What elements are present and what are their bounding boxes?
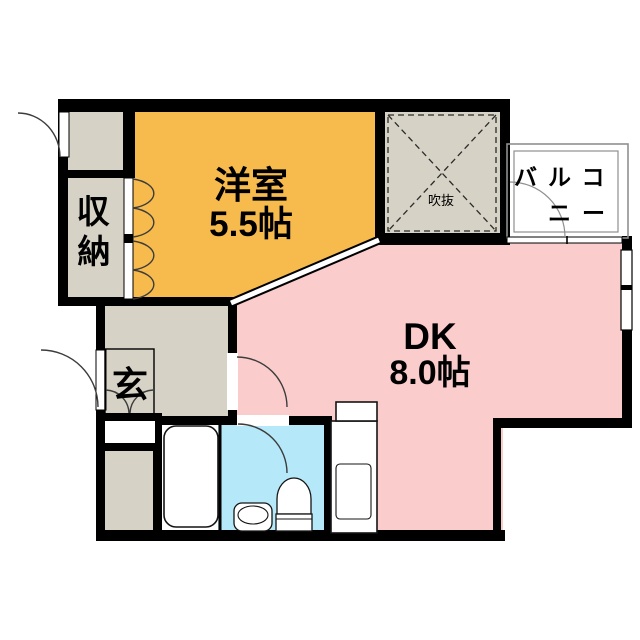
closet-label-char1: 収 <box>77 193 111 230</box>
western-room-size: 5.5帖 <box>209 205 293 244</box>
wall-void-right <box>500 99 510 245</box>
void-floor <box>383 110 502 236</box>
balcony-sliding-door <box>507 237 622 243</box>
washroom-passage-gap <box>105 421 155 443</box>
closet-label-char2: 納 <box>78 233 111 270</box>
floor-plan-page: 洋室 5.5帖 DK 8.0帖 収 納 玄 吹抜 バルコ ニー <box>0 0 640 640</box>
wall-dk-step-bottom <box>493 418 632 428</box>
wall-void-bottom <box>375 233 510 245</box>
wall-bath-toilet-divider <box>219 420 222 532</box>
wall-hall-left-lower <box>96 410 105 541</box>
wall-porch-right <box>123 99 135 172</box>
western-room-label: 洋室 <box>214 164 288 206</box>
wall-bath-top <box>155 416 237 425</box>
wall-dk-step-left <box>493 418 501 539</box>
wall-washroom-top <box>96 443 162 451</box>
dk-size: 8.0帖 <box>389 354 470 392</box>
wall-void-left <box>375 99 385 245</box>
wall-hall-left-upper <box>96 305 105 350</box>
kitchen-sink-icon <box>336 464 371 519</box>
bathtub-icon <box>164 426 218 527</box>
closet-door-track-tick <box>124 234 133 243</box>
dk-door-gap <box>227 353 238 410</box>
balcony-label-line1: バルコ <box>514 164 616 190</box>
wall-western-room-bottom <box>58 297 237 306</box>
void-label: 吹抜 <box>428 193 454 208</box>
porch-floor <box>64 110 126 172</box>
dk-window-center-tick <box>621 285 632 290</box>
entrance-label: 玄 <box>112 364 148 405</box>
toilet-tank-icon <box>276 514 312 531</box>
washroom-floor <box>100 450 158 534</box>
dk-window <box>621 250 632 330</box>
floor-plan: 洋室 5.5帖 DK 8.0帖 収 納 玄 吹抜 バルコ ニー <box>0 0 640 640</box>
toilet-bowl-icon <box>277 478 311 514</box>
kitchen-upper-box-icon <box>336 402 377 421</box>
wash-basin-bowl-icon <box>238 506 268 524</box>
wall-dk-right-bottom <box>622 330 632 428</box>
porch-door-gap <box>59 112 69 157</box>
balcony-label-line2: ニー <box>548 200 616 226</box>
wall-dk-left-lower <box>228 410 237 421</box>
dk-label: DK <box>403 316 457 357</box>
